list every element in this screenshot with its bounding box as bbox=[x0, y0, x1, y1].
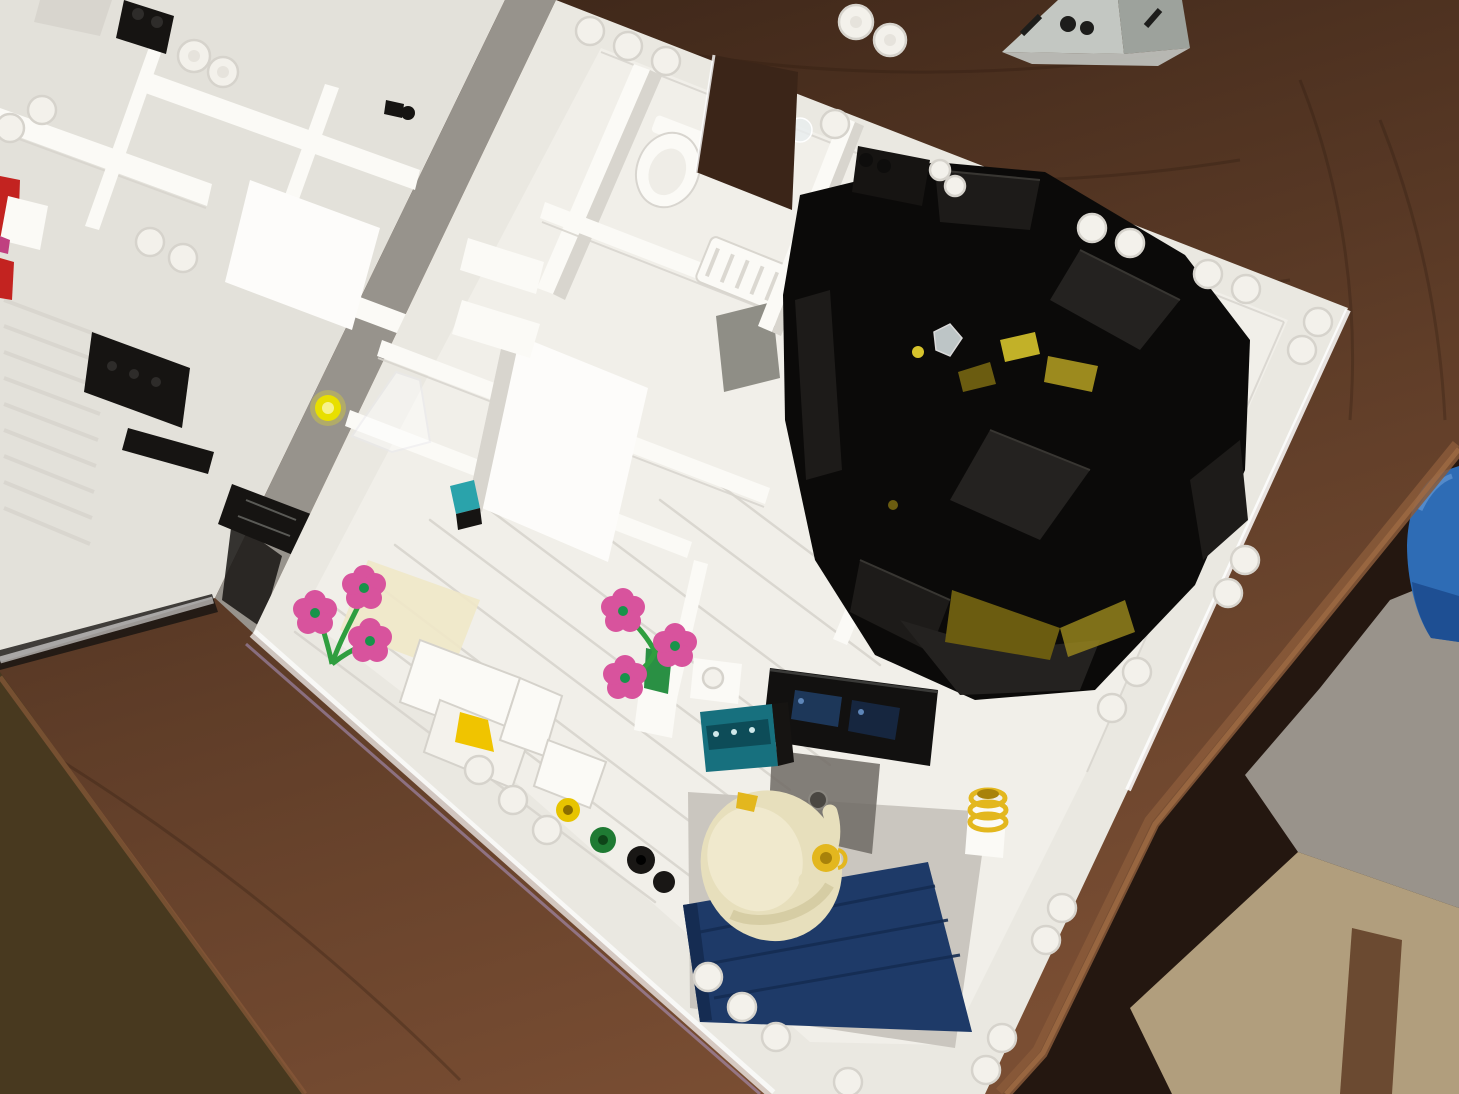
photo-stage: A roofless white LEGO building interior … bbox=[0, 0, 1459, 1094]
trans-yellow-tile bbox=[310, 390, 346, 426]
teal-control-panel bbox=[700, 702, 794, 772]
lego-interior-photo bbox=[0, 0, 1459, 1094]
technic-hole bbox=[1060, 16, 1076, 32]
technic-hole bbox=[1080, 21, 1094, 35]
shelf-stud bbox=[703, 668, 723, 688]
